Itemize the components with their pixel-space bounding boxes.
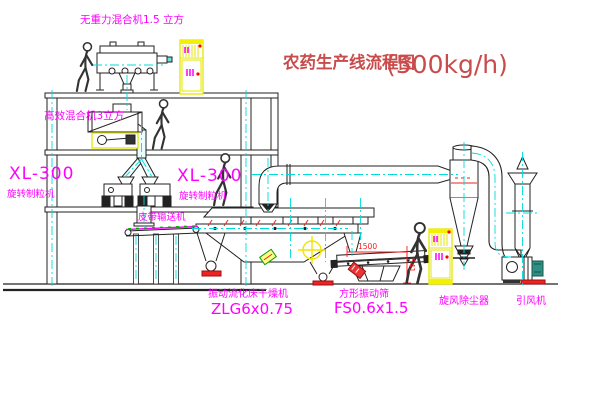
label-fan: 引风机	[516, 294, 546, 307]
dimension-1500: 1500	[358, 242, 377, 251]
label-belt-conveyor: 皮带输送机	[138, 211, 186, 223]
dimension-541: 541	[407, 258, 416, 273]
label-granulator-left-name: 旋转制粒机	[7, 188, 55, 200]
diagram-svg: 无重力混合机1.5 立方 农药生产线流程图 (500kg/h) 高效混合机3立方…	[0, 0, 600, 403]
rotary-granulator-2	[138, 177, 171, 206]
label-gravity-mixer: 无重力混合机1.5 立方	[80, 13, 184, 26]
rotary-granulator-1	[102, 177, 134, 206]
label-dryer-name: 振动流化床干燥机	[208, 287, 288, 300]
label-granulator-left-model: XL-300	[9, 164, 74, 184]
label-granulator-center-model: XL-300	[177, 166, 242, 186]
label-sieve-model: FS0.6x1.5	[334, 299, 408, 317]
gravity-free-mixer	[96, 42, 172, 93]
page-title-capacity: (500kg/h)	[386, 50, 508, 79]
induced-draft-fan	[502, 257, 545, 284]
label-high-efficiency-mixer: 高效混合机3立方	[44, 109, 124, 122]
fluid-bed-dryer	[196, 217, 368, 285]
label-cyclone: 旋风除尘器	[439, 294, 489, 307]
label-granulator-center-name: 旋转制粒机	[179, 190, 227, 202]
process-flow-diagram: 无重力混合机1.5 立方 农药生产线流程图 (500kg/h) 高效混合机3立方…	[0, 0, 600, 403]
worker-figure-1	[77, 43, 92, 91]
label-dryer-model: ZLG6x0.75	[211, 300, 293, 318]
worker-figure-2	[153, 100, 169, 149]
control-cabinet-top	[180, 40, 203, 94]
control-cabinet-cyclone	[429, 229, 452, 284]
